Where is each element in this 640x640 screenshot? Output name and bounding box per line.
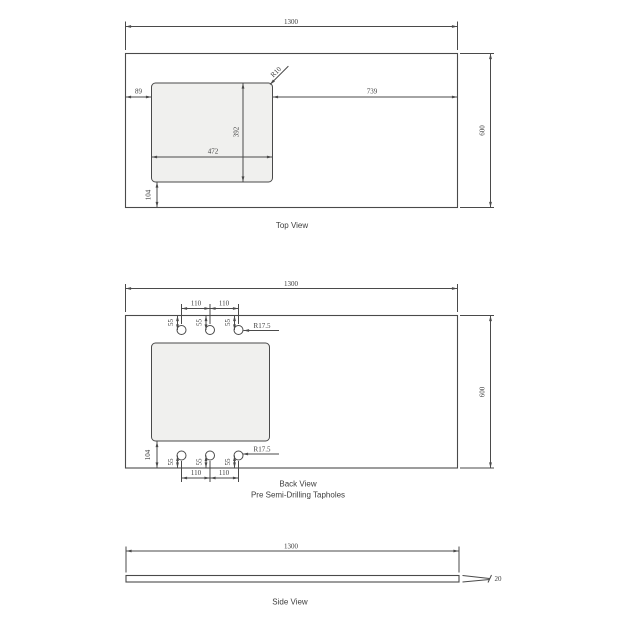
dim-label: 110 bbox=[191, 469, 202, 477]
dim-label: 55 bbox=[167, 458, 175, 466]
dim-cutout-offset-right: 739 bbox=[273, 88, 458, 98]
drawing-svg: 1300 600 89 739 472 392 bbox=[0, 0, 640, 640]
back-view-title: Back View bbox=[279, 480, 316, 489]
dim-label: 1300 bbox=[284, 280, 299, 288]
dim-label: 110 bbox=[219, 469, 230, 477]
taphole-circle bbox=[206, 326, 215, 335]
dim-label: R17.5 bbox=[254, 446, 271, 454]
dim-label: 392 bbox=[233, 126, 241, 137]
dim-cutout-offset-left: 89 bbox=[126, 88, 152, 98]
leader-line bbox=[463, 580, 490, 583]
dim-overall-depth: 600 bbox=[460, 54, 494, 208]
cad-drawing-sheet: 1300 600 89 739 472 392 bbox=[0, 0, 640, 640]
dim-label: 1300 bbox=[284, 543, 299, 551]
dim-label: 110 bbox=[219, 300, 230, 308]
dim-label: 104 bbox=[145, 189, 153, 200]
dim-overall-width: 1300 bbox=[126, 280, 458, 312]
dim-cutout-offset-bottom: 104 bbox=[144, 442, 157, 469]
sink-cutout bbox=[152, 83, 273, 182]
dim-label: 55 bbox=[224, 458, 232, 466]
dim-corner-radius: R10 bbox=[264, 60, 288, 84]
back-view-subtitle: Pre Semi-Drilling Tapholes bbox=[251, 491, 345, 500]
dim-label: 600 bbox=[479, 125, 487, 136]
dim-label: 55 bbox=[196, 319, 204, 327]
dim-taphole-radius-top: R17.5 bbox=[244, 322, 280, 331]
dim-taphole-radius-bottom: R17.5 bbox=[243, 446, 280, 455]
dim-taphole-edge-offsets-top: 55 55 55 bbox=[167, 316, 235, 331]
dim-taphole-edge-offsets-bottom: 55 55 55 bbox=[167, 456, 235, 469]
taphole-circle bbox=[206, 451, 215, 460]
taphole-circle bbox=[234, 326, 243, 335]
dim-label: 55 bbox=[196, 458, 204, 466]
dim-label: 739 bbox=[367, 88, 378, 96]
back-view: 1300 600 110 110 55 55 55 bbox=[126, 280, 495, 500]
dim-label: 472 bbox=[208, 148, 219, 156]
dim-label: 55 bbox=[224, 319, 232, 327]
dim-label: 1300 bbox=[284, 18, 299, 26]
side-view: 1300 20 Side View bbox=[126, 543, 502, 607]
dim-overall-width: 1300 bbox=[126, 18, 458, 50]
leader-line bbox=[463, 576, 490, 579]
top-view: 1300 600 89 739 472 392 bbox=[126, 18, 495, 230]
taphole-circle bbox=[177, 326, 186, 335]
side-view-title: Side View bbox=[272, 598, 308, 607]
taphole-circle bbox=[177, 451, 186, 460]
dim-cutout-offset-bottom: 104 bbox=[145, 182, 158, 208]
dim-thickness: 20 bbox=[463, 575, 503, 583]
dim-overall-width: 1300 bbox=[126, 543, 459, 573]
dim-label: 89 bbox=[135, 88, 143, 96]
dim-label: R17.5 bbox=[254, 322, 271, 330]
dim-label: 55 bbox=[167, 319, 175, 327]
dim-label: 110 bbox=[191, 300, 202, 308]
sink-cutout bbox=[152, 343, 270, 441]
slab-outline bbox=[126, 576, 459, 583]
taphole-circle bbox=[234, 451, 243, 460]
dim-label: 20 bbox=[495, 575, 503, 583]
dim-label: 600 bbox=[479, 386, 487, 397]
dim-overall-depth: 600 bbox=[460, 316, 494, 469]
dim-label: 104 bbox=[144, 449, 152, 460]
top-view-title: Top View bbox=[276, 221, 309, 230]
dim-label: R10 bbox=[269, 65, 283, 79]
